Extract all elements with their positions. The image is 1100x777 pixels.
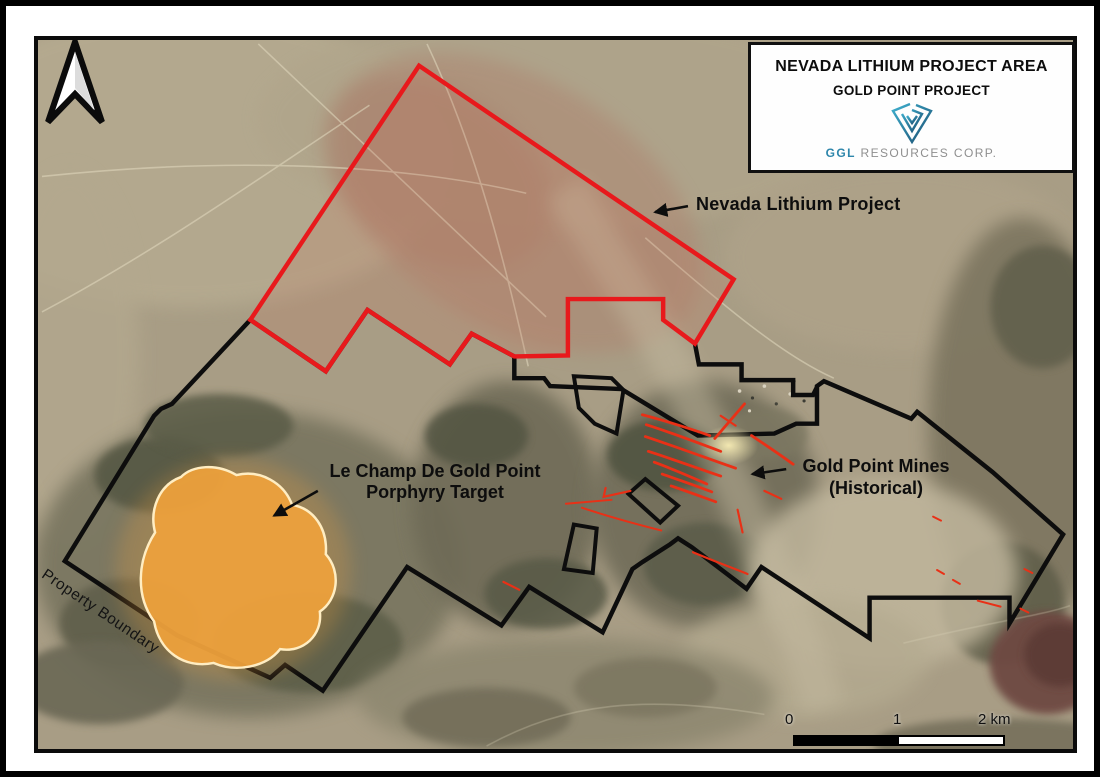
scale-tick-2: 2 km — [978, 711, 1011, 728]
scale-tick-0: 0 — [785, 711, 793, 728]
company-name-rest: RESOURCES CORP. — [856, 146, 998, 160]
title-box: NEVADA LITHIUM PROJECT AREA GOLD POINT P… — [748, 42, 1075, 173]
gold-point-mines-label-line2: (Historical) — [788, 478, 964, 500]
lithium-project-label: Nevada Lithium Project — [696, 194, 900, 215]
scale-bar — [793, 735, 1005, 746]
ggl-logo-icon — [751, 101, 1072, 145]
porphyry-target-label-line1: Le Champ De Gold Point — [312, 461, 558, 482]
title-line1: NEVADA LITHIUM PROJECT AREA — [751, 58, 1072, 76]
porphyry-target-label: Le Champ De Gold Point Porphyry Target — [312, 461, 558, 503]
scale-bar-filled-segment — [795, 737, 899, 744]
gold-point-mines-label-line1: Gold Point Mines — [788, 456, 964, 478]
porphyry-target-label-line2: Porphyry Target — [312, 482, 558, 503]
gold-point-mines-label: Gold Point Mines (Historical) — [788, 456, 964, 499]
title-line2: GOLD POINT PROJECT — [751, 83, 1072, 98]
map-page: Nevada Lithium Project Le Champ De Gold … — [0, 0, 1100, 777]
company-name: GGL RESOURCES CORP. — [751, 146, 1072, 160]
company-name-bold: GGL — [826, 146, 856, 160]
north-arrow-icon — [42, 36, 108, 128]
scale-tick-1: 1 — [893, 711, 901, 728]
